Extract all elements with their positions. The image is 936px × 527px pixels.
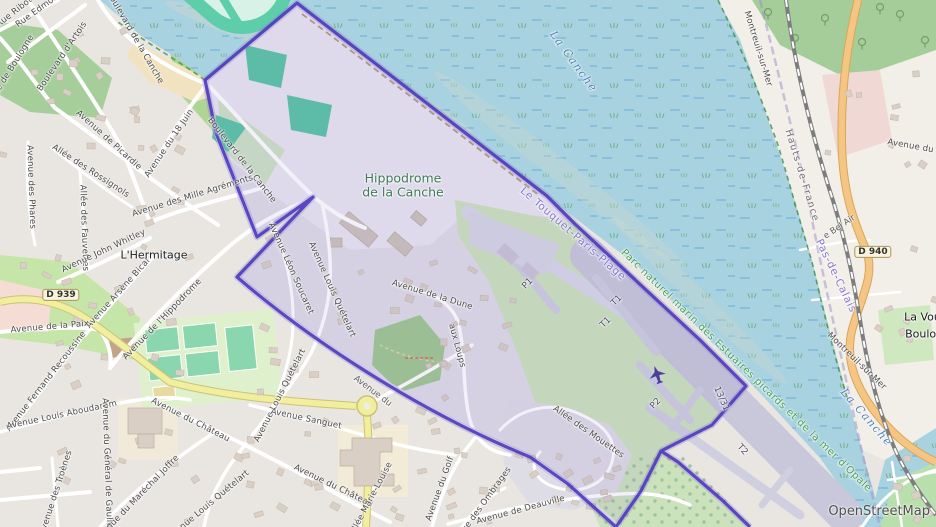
osm-map-canvas[interactable]: Rue RibotRue EdmondRue de BoulogneBoulev… bbox=[0, 0, 936, 527]
osm-attribution-link[interactable]: OpenStreetMap bbox=[828, 504, 930, 519]
map-render-layer bbox=[0, 0, 936, 527]
